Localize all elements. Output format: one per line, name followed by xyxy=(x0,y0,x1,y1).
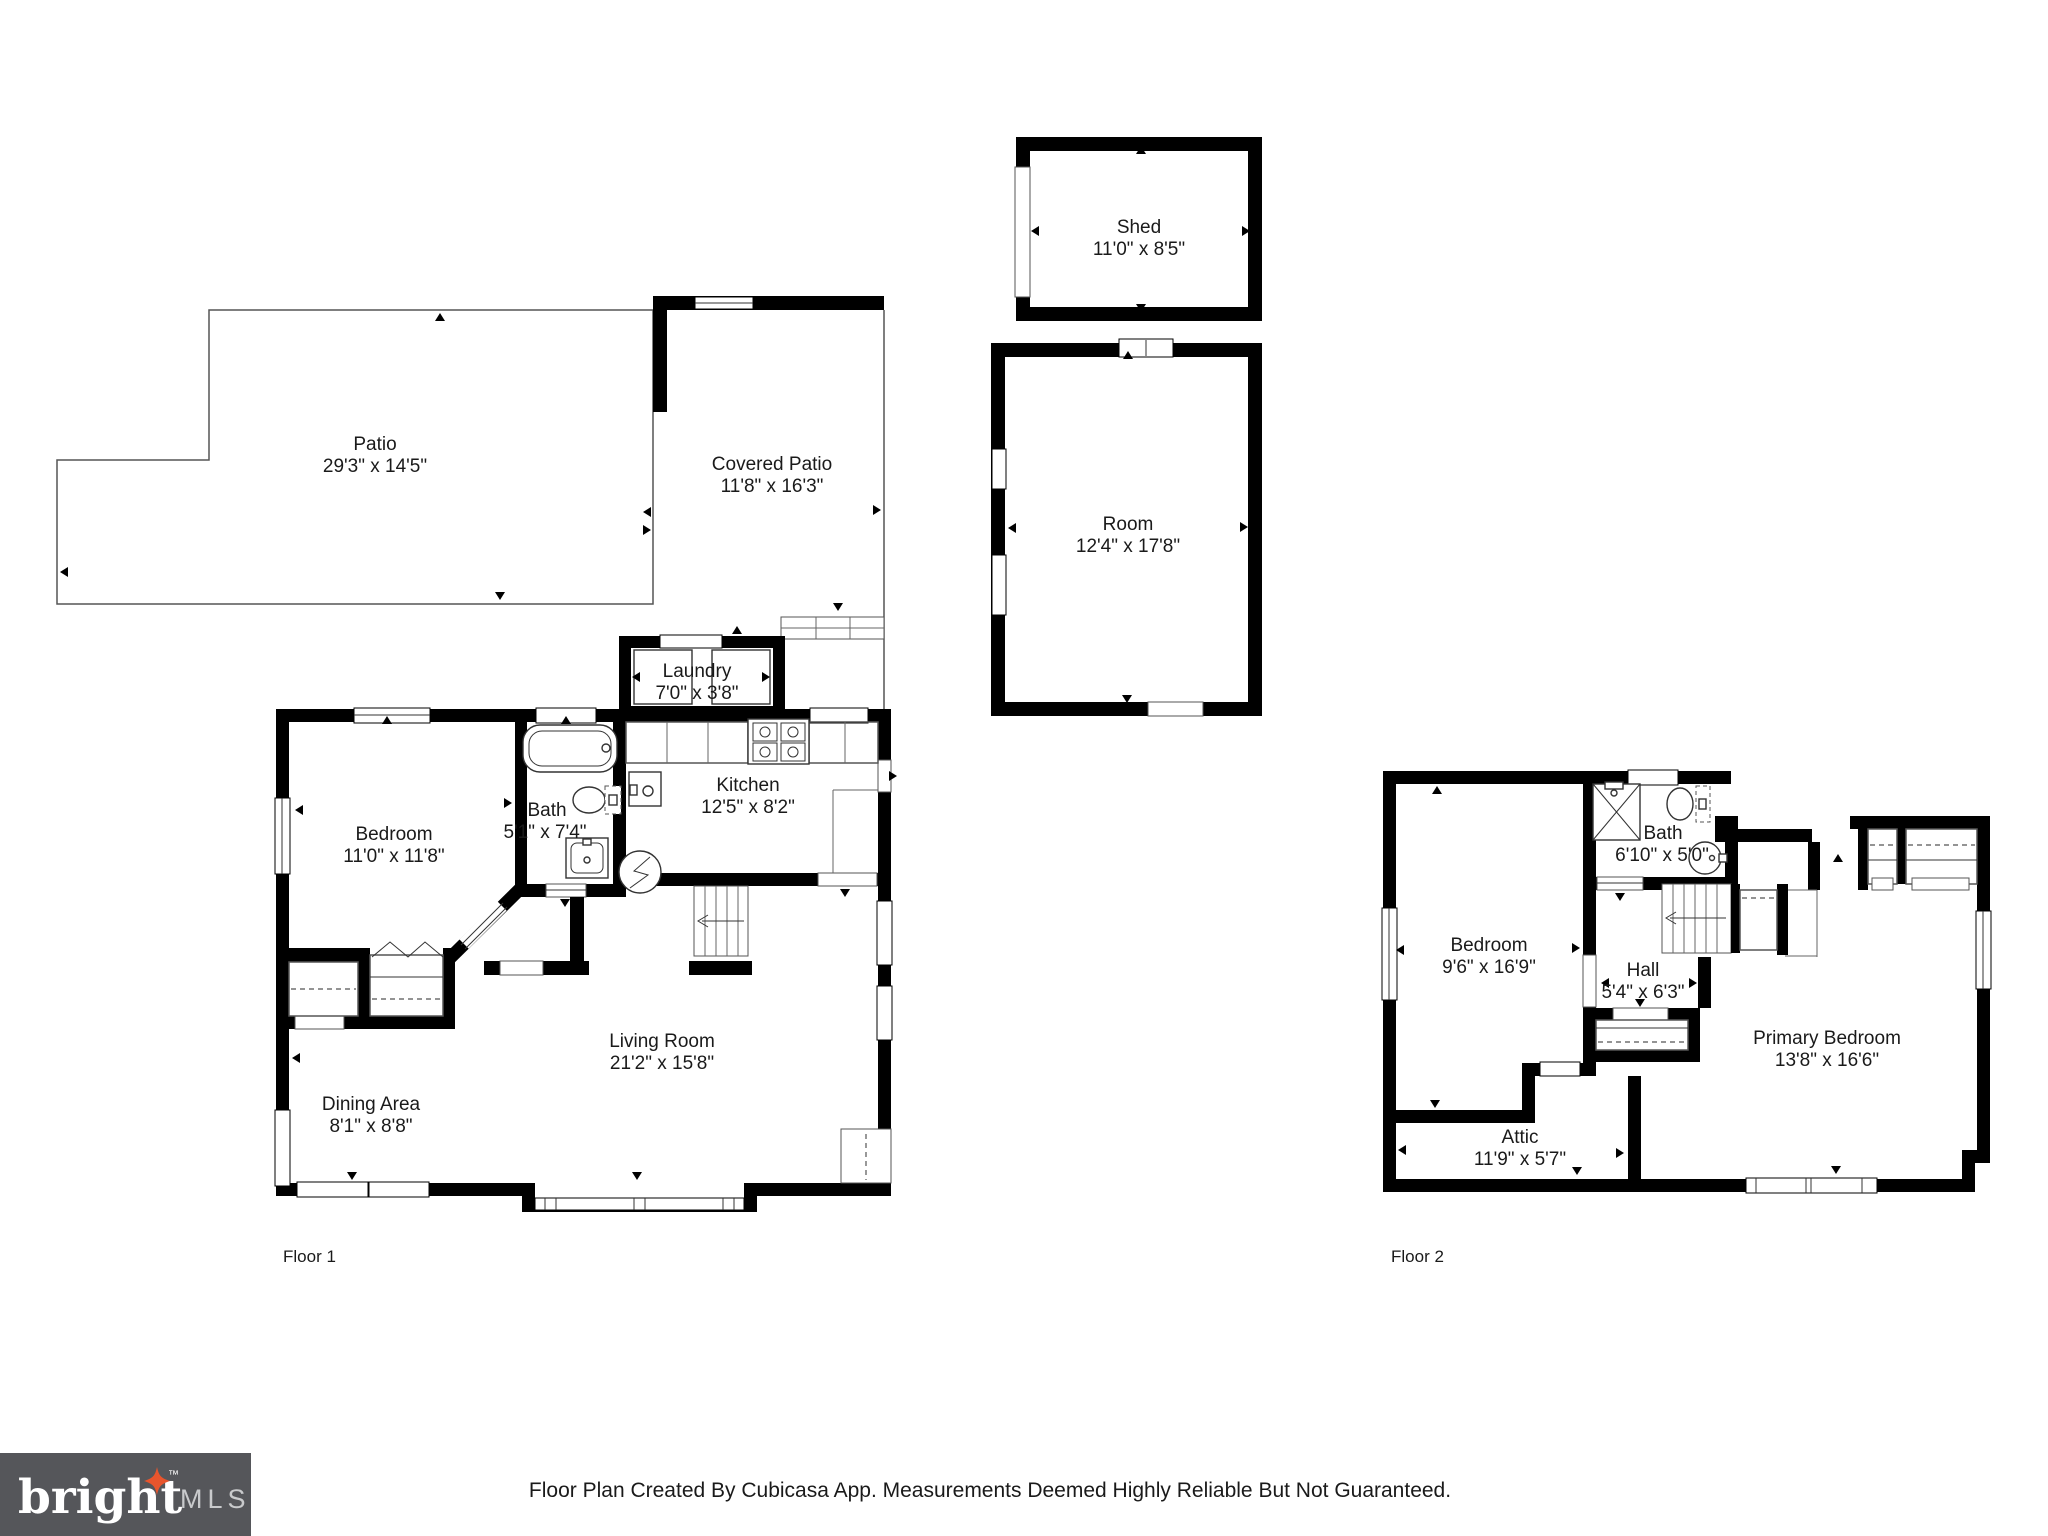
door-marker-icon xyxy=(1689,978,1697,988)
window xyxy=(369,1182,429,1197)
room-dims-attic: 11'9" x 5'7" xyxy=(1474,1149,1566,1170)
window xyxy=(297,1182,368,1197)
door-marker-icon xyxy=(643,525,651,535)
sink-tap-icon xyxy=(630,785,637,795)
door-marker-icon xyxy=(1833,854,1843,862)
closet-door-opening xyxy=(1613,1008,1668,1020)
sink-drain xyxy=(1710,856,1715,861)
door-marker-icon xyxy=(833,603,843,611)
room-dims-kitchen: 12'5" x 8'2" xyxy=(701,797,795,818)
door-marker-icon xyxy=(1430,1100,1440,1108)
door-marker-icon xyxy=(1616,1148,1624,1158)
room-dims-living-room: 21'2" x 15'8" xyxy=(610,1053,714,1074)
f2-step-wall xyxy=(1808,842,1820,890)
door-marker-icon xyxy=(840,889,850,897)
toilet-flush xyxy=(609,795,617,805)
room-label-room: Room xyxy=(1103,514,1154,535)
patio-area: Patio 29'3" x 14'5" xyxy=(57,310,653,604)
door-opening xyxy=(1583,955,1596,1007)
door-marker-icon xyxy=(1572,1167,1582,1175)
door-marker-icon xyxy=(1831,1166,1841,1174)
covered-patio-left-wall xyxy=(653,296,667,412)
shed-door-opening xyxy=(1015,167,1030,297)
window xyxy=(275,1110,290,1186)
toilet-icon xyxy=(573,787,605,813)
window xyxy=(992,555,1006,615)
room-label-kitchen: Kitchen xyxy=(716,775,779,796)
bay-window xyxy=(535,1198,744,1210)
f2-hall-closet-wall xyxy=(1583,1050,1700,1062)
sink-drain xyxy=(643,786,653,796)
closet xyxy=(370,955,443,1016)
floor1-label: Floor 1 xyxy=(283,1247,336,1266)
f1-vestibule-wall xyxy=(570,897,584,963)
window xyxy=(810,708,868,723)
room-label-laundry: Laundry xyxy=(663,661,732,682)
room-dims-bedroom-f2: 9'6" x 16'9" xyxy=(1442,957,1536,978)
room-label-dining-area: Dining Area xyxy=(322,1094,421,1115)
room-label-bedroom-f2: Bedroom xyxy=(1450,935,1527,956)
furnace-icon xyxy=(619,851,661,893)
f2-bottom-wall xyxy=(1383,1179,1975,1192)
room-label-bath-f2: Bath xyxy=(1643,823,1682,844)
room-label-bedroom-f1: Bedroom xyxy=(355,824,432,845)
bathtub-faucet-icon xyxy=(602,744,610,752)
window xyxy=(877,901,892,965)
door-marker-icon xyxy=(504,798,512,808)
door-marker-icon xyxy=(560,899,570,907)
room-label-hall: Hall xyxy=(1627,960,1660,981)
closet-door-opening xyxy=(1872,878,1893,890)
floor1-house: Bedroom 11'0" x 11'8" Bath 5'1" x 7'4" K… xyxy=(275,708,897,1212)
room-dims-shed: 11'0" x 8'5" xyxy=(1093,239,1185,260)
room-dims-hall: 5'4" x 6'3" xyxy=(1601,982,1684,1003)
door-marker-icon xyxy=(1398,1145,1406,1155)
brightmls-logo-tm: ™ xyxy=(168,1469,179,1481)
f2-stair-closet-wall xyxy=(1731,884,1740,953)
kitchen-counter xyxy=(626,722,748,763)
shower-head-icon xyxy=(1605,782,1623,789)
room-label-covered-patio: Covered Patio xyxy=(712,454,832,475)
door-marker-icon xyxy=(873,505,881,515)
door-marker-icon xyxy=(1432,786,1442,794)
toilet-flush xyxy=(1699,799,1706,809)
room-dims-dining-area: 8'1" x 8'8" xyxy=(329,1116,412,1137)
room-label-primary-bedroom: Primary Bedroom xyxy=(1753,1028,1901,1049)
door-marker-icon xyxy=(435,313,445,321)
window xyxy=(1628,770,1678,785)
room-dims-bath-f1: 5'1" x 7'4" xyxy=(503,822,586,843)
floor2-label: Floor 2 xyxy=(1391,1247,1444,1266)
room-label-attic: Attic xyxy=(1502,1127,1539,1148)
sink-drain xyxy=(584,857,590,863)
door-marker-icon xyxy=(632,1172,642,1180)
kitchen-counter xyxy=(809,722,878,763)
door-marker-icon xyxy=(347,1172,357,1180)
closet-door-opening xyxy=(1912,878,1969,890)
room-label-shed: Shed xyxy=(1117,217,1161,238)
room-dims-patio: 29'3" x 14'5" xyxy=(323,456,427,477)
room-label-bath-f1: Bath xyxy=(527,800,566,821)
f2-hall-primary-wall xyxy=(1698,957,1711,1008)
f2-attic-right-wall xyxy=(1628,1076,1641,1192)
f2-right-lower-wall xyxy=(1962,1150,1975,1192)
door-opening xyxy=(464,906,502,944)
window xyxy=(1540,1062,1580,1076)
room-dims-bedroom-f1: 11'0" x 11'8" xyxy=(343,846,444,867)
closet xyxy=(1596,1020,1688,1050)
closet xyxy=(1868,829,1897,884)
disclaimer-text: Floor Plan Created By Cubicasa App. Meas… xyxy=(529,1479,1451,1502)
window xyxy=(992,449,1006,489)
room-dims-covered-patio: 11'8" x 16'3" xyxy=(721,476,824,497)
door-marker-icon xyxy=(732,626,742,634)
closet xyxy=(1740,890,1777,950)
shower-drain xyxy=(1611,790,1617,796)
room-dims-room: 12'4" x 17'8" xyxy=(1076,536,1180,557)
f2-bedroom-bottom-wall xyxy=(1383,1110,1532,1123)
door-marker-icon xyxy=(643,507,651,517)
room-dims-bath-f2: 6'10" x 5'0" xyxy=(1615,845,1709,866)
brightmls-logo-suffix: MLS xyxy=(180,1484,251,1514)
shed-outbuilding: Shed 11'0" x 8'5" xyxy=(1015,137,1262,321)
floor-plan-canvas: Shed 11'0" x 8'5" Room 12'4" x 17'8" Pat… xyxy=(0,0,2048,1536)
f2-alcove-closet-wall xyxy=(1858,829,1868,890)
toilet-icon xyxy=(1667,788,1693,820)
f2-closet-top-wall xyxy=(1850,816,1990,829)
footer: bright ™ MLS Floor Plan Created By Cubic… xyxy=(0,1453,1451,1536)
closet-door-opening xyxy=(295,1016,344,1029)
covered-patio-top-wall xyxy=(653,296,884,310)
door-opening xyxy=(500,961,543,975)
cased-opening xyxy=(818,873,877,886)
bay-opening xyxy=(528,1183,748,1196)
door-leaf xyxy=(461,903,503,945)
f2-mid-top-wall xyxy=(1738,829,1812,842)
door-marker-icon xyxy=(1572,943,1580,953)
window xyxy=(660,635,722,648)
f2-top-wall xyxy=(1383,771,1731,784)
door-marker-icon xyxy=(60,567,68,577)
room-label-living-room: Living Room xyxy=(609,1031,715,1052)
f1-stair-bottom-wall xyxy=(689,961,752,975)
door-marker-icon xyxy=(292,1053,300,1063)
f2-bath-corner-wall xyxy=(1715,816,1738,842)
sink-tap-icon xyxy=(1719,854,1727,862)
closet xyxy=(1906,829,1977,884)
door-marker-icon xyxy=(495,592,505,600)
door-marker-icon xyxy=(295,805,303,815)
f2-closet-divider xyxy=(1897,829,1906,884)
room-label-patio: Patio xyxy=(353,434,396,455)
door-marker-icon xyxy=(1615,893,1625,901)
f1-closet-wall xyxy=(276,948,358,962)
door-marker-icon xyxy=(889,771,897,781)
room-outbuilding: Room 12'4" x 17'8" xyxy=(991,339,1262,716)
floor2-house: Bedroom 9'6" x 16'9" Bath 6'10" x 5'0" H… xyxy=(1382,770,1991,1193)
room-dims-laundry: 7'0" x 3'8" xyxy=(655,683,738,704)
door-opening xyxy=(1148,702,1203,716)
f2-stair-closet-wall xyxy=(1777,884,1788,955)
window xyxy=(877,986,892,1040)
room-dims-primary-bedroom: 13'8" x 16'6" xyxy=(1775,1050,1879,1071)
